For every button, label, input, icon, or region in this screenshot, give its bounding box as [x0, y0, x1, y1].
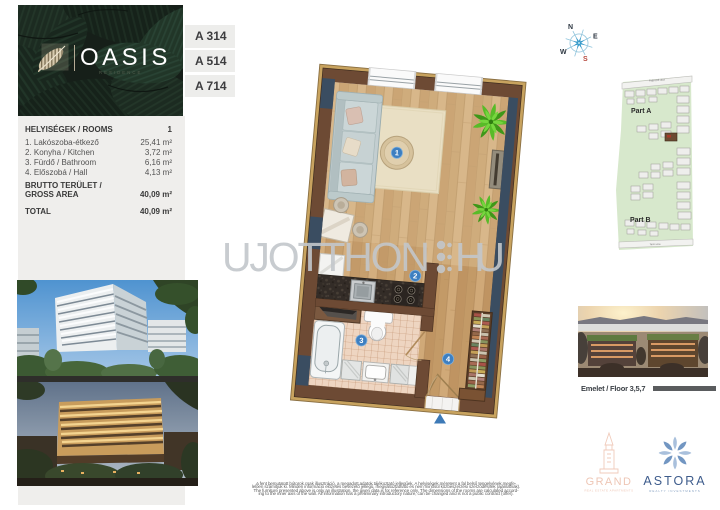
svg-text:UJOTTHON: UJOTTHON	[222, 236, 430, 278]
svg-text:E: E	[593, 34, 598, 41]
svg-text:ASTORA: ASTORA	[643, 474, 706, 488]
svg-text:HU: HU	[455, 236, 505, 278]
svg-text:Part A: Part A	[631, 108, 651, 115]
svg-text:1: 1	[394, 148, 399, 157]
svg-text:S: S	[583, 56, 588, 63]
svg-text:3: 3	[359, 336, 364, 345]
svg-text:Tass utca: Tass utca	[649, 242, 661, 246]
svg-text:W: W	[560, 49, 567, 56]
svg-text:REAL ESTATE APARTMENTS: REAL ESTATE APARTMENTS	[585, 489, 634, 493]
svg-text:Part B: Part B	[630, 217, 651, 224]
svg-text:REALTY INVESTMENTS: REALTY INVESTMENTS	[649, 489, 701, 493]
svg-text:GRAND: GRAND	[586, 476, 633, 488]
svg-text:N: N	[568, 24, 573, 31]
